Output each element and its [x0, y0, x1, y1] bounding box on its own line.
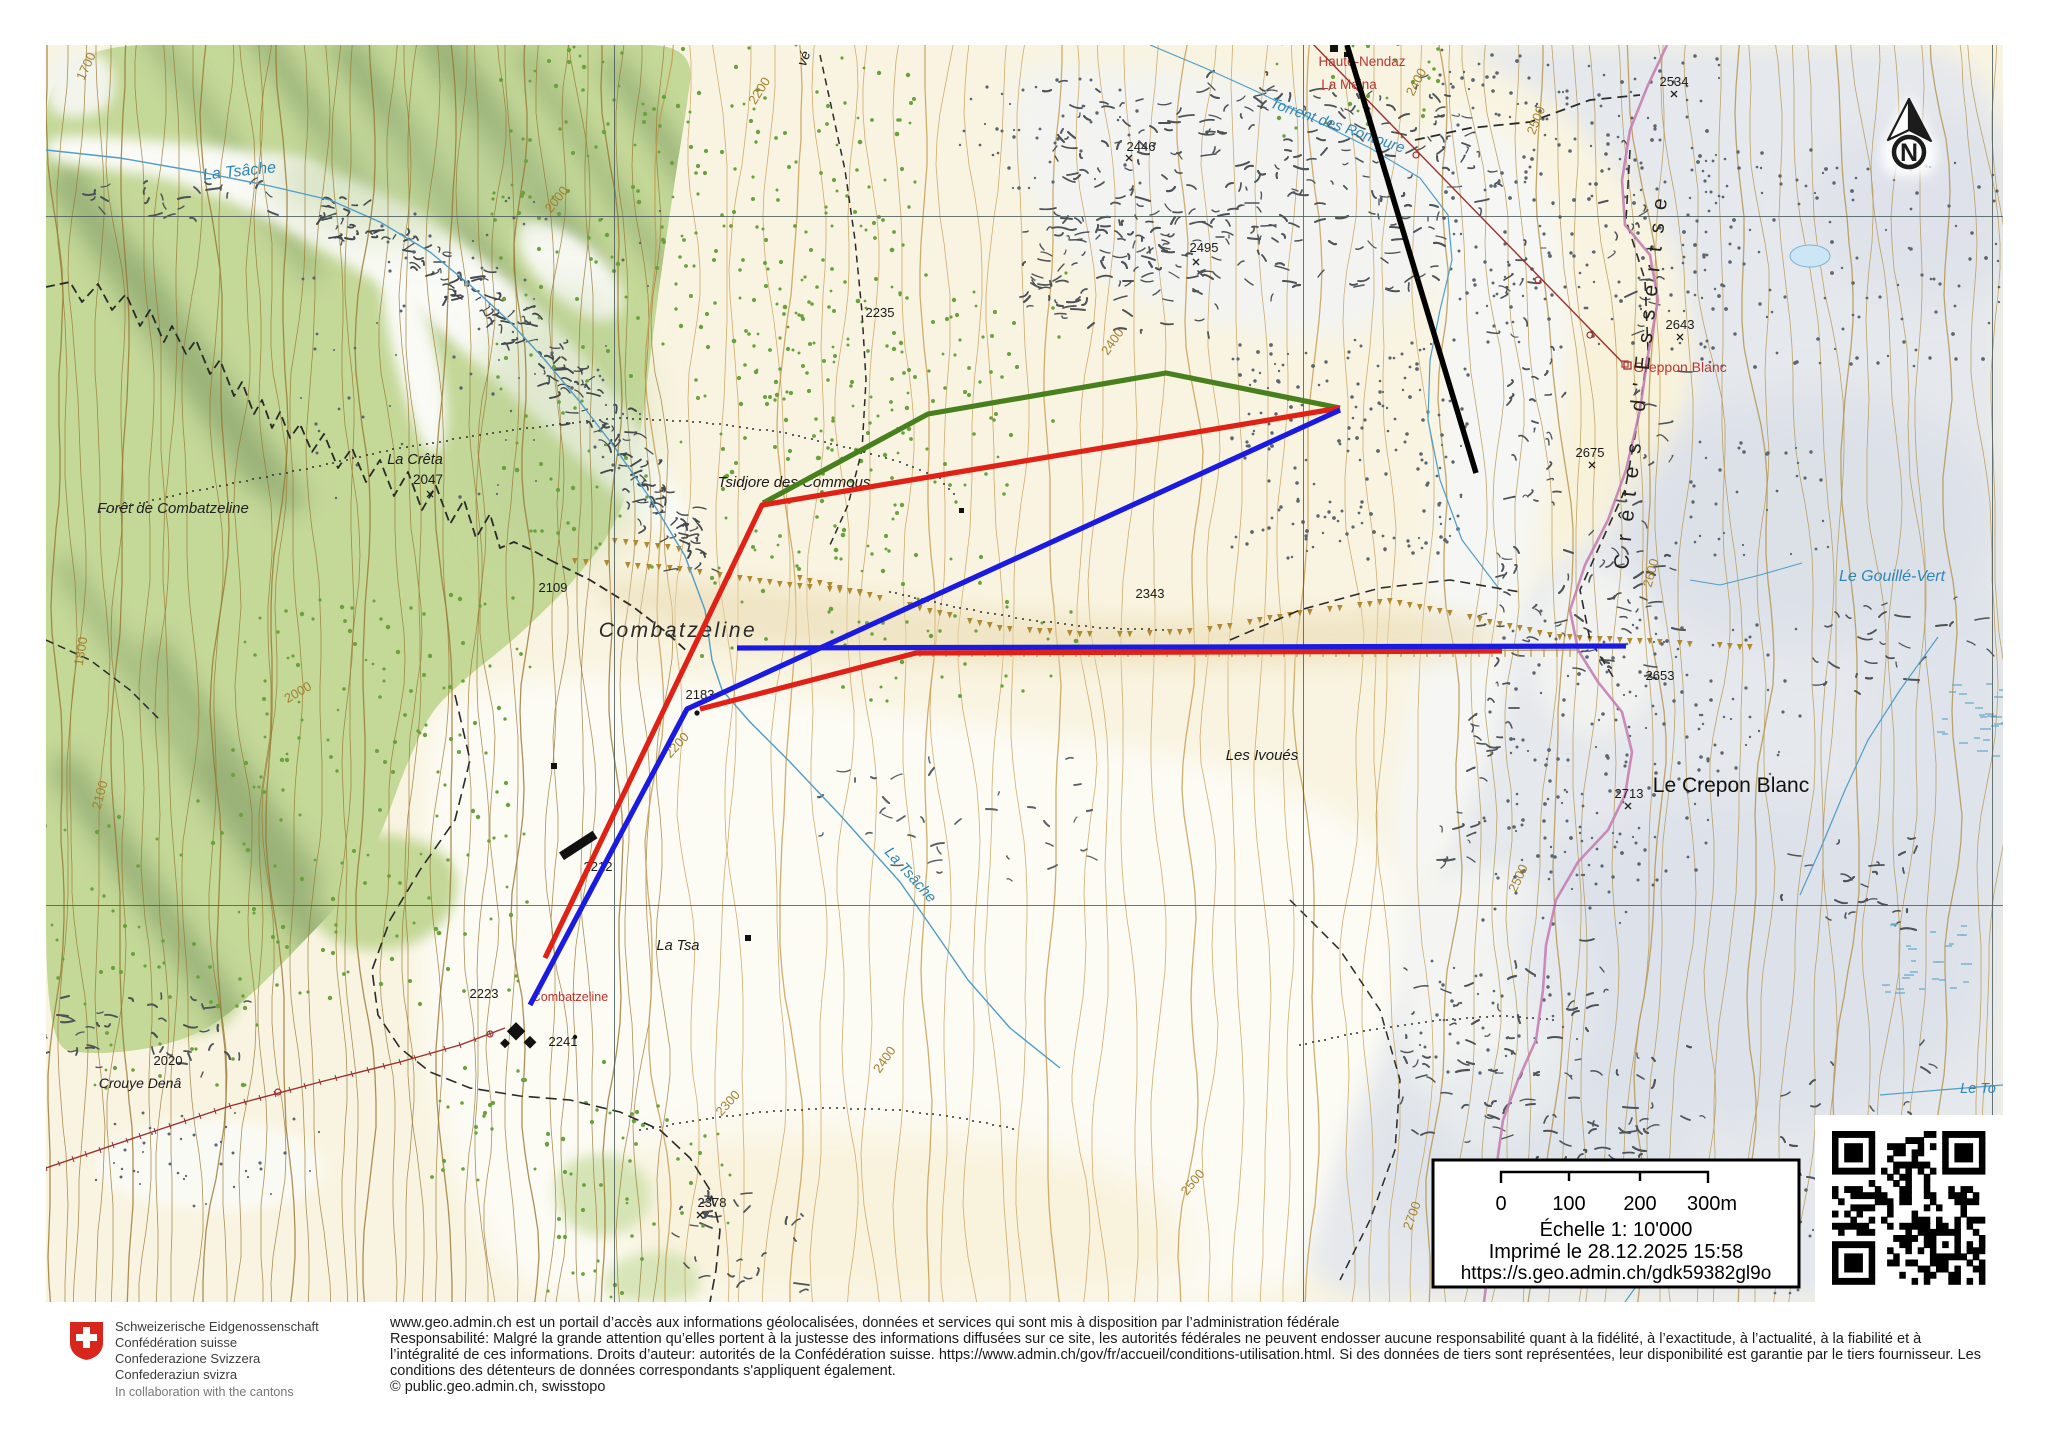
svg-text:2235: 2235	[866, 305, 895, 320]
svg-text:2047: 2047	[413, 472, 443, 487]
svg-text:200: 200	[1623, 1193, 1656, 1215]
svg-text:La Crêta: La Crêta	[387, 452, 443, 468]
svg-text:Crouye Denâ: Crouye Denâ	[99, 1075, 182, 1091]
svg-text:Imprimé le 28.12.2025 15:58: Imprimé le 28.12.2025 15:58	[1489, 1241, 1744, 1263]
svg-text:Schweizerische Eidgenossenscha: Schweizerische Eidgenossenschaft	[115, 1319, 319, 1334]
svg-text:Forêt de Combatzeline: Forêt de Combatzeline	[97, 500, 249, 517]
svg-text:Le Crepon Blanc: Le Crepon Blanc	[1653, 774, 1809, 797]
svg-text:Combatzeline: Combatzeline	[532, 990, 608, 1004]
svg-text:2495: 2495	[1190, 240, 1219, 255]
svg-text:Confederaziun svizra: Confederaziun svizra	[115, 1367, 238, 1382]
svg-text:0: 0	[1495, 1193, 1506, 1215]
svg-text:Le Gouillé-Vert: Le Gouillé-Vert	[1839, 568, 1946, 585]
svg-text:2241: 2241	[549, 1034, 578, 1049]
svg-text:Combatzeline: Combatzeline	[599, 619, 757, 642]
svg-text:Haute-Nendaz: Haute-Nendaz	[1318, 54, 1405, 69]
svg-text:l’intégralité de ces informati: l’intégralité de ces informations. Droit…	[390, 1347, 1981, 1363]
svg-text:2643: 2643	[1666, 317, 1695, 332]
svg-text:2223: 2223	[470, 986, 499, 1001]
svg-text:2446: 2446	[1127, 139, 1156, 154]
svg-text:2675: 2675	[1576, 445, 1605, 460]
svg-text:2378: 2378	[698, 1195, 727, 1210]
svg-text:2109: 2109	[539, 580, 568, 595]
svg-text:© public.geo.admin.ch, swissto: © public.geo.admin.ch, swisstopo	[390, 1379, 605, 1395]
svg-text:La Meina: La Meina	[1321, 77, 1377, 92]
svg-text:Échelle 1: 10'000: Échelle 1: 10'000	[1540, 1218, 1693, 1241]
svg-text:100: 100	[1552, 1193, 1585, 1215]
svg-text:Confédération suisse: Confédération suisse	[115, 1335, 237, 1350]
svg-text:Responsabilité: Malgré la gran: Responsabilité: Malgré la grande attenti…	[390, 1331, 1922, 1347]
svg-text:https://s.geo.admin.ch/gdk5938: https://s.geo.admin.ch/gdk59382gl9o	[1461, 1263, 1772, 1284]
svg-text:conditions des détenteurs de d: conditions des détenteurs de données cor…	[390, 1363, 896, 1379]
svg-text:In collaboration with the cant: In collaboration with the cantons	[115, 1385, 294, 1399]
svg-text:2020: 2020	[154, 1053, 183, 1068]
svg-text:N: N	[1900, 139, 1918, 167]
svg-text:2713: 2713	[1615, 786, 1644, 801]
svg-text:2653: 2653	[1646, 668, 1675, 683]
svg-text:Le To: Le To	[1960, 1081, 1996, 1097]
svg-text:2534: 2534	[1660, 74, 1689, 89]
svg-text:Les Ivoués: Les Ivoués	[1226, 747, 1299, 764]
svg-text:www.geo.admin.ch est un portai: www.geo.admin.ch est un portail d’accès …	[389, 1315, 1339, 1331]
svg-text:2343: 2343	[1136, 586, 1165, 601]
svg-text:La Tsa: La Tsa	[657, 938, 700, 954]
svg-text:Confederazione Svizzera: Confederazione Svizzera	[115, 1351, 261, 1366]
svg-text:300m: 300m	[1687, 1193, 1737, 1215]
